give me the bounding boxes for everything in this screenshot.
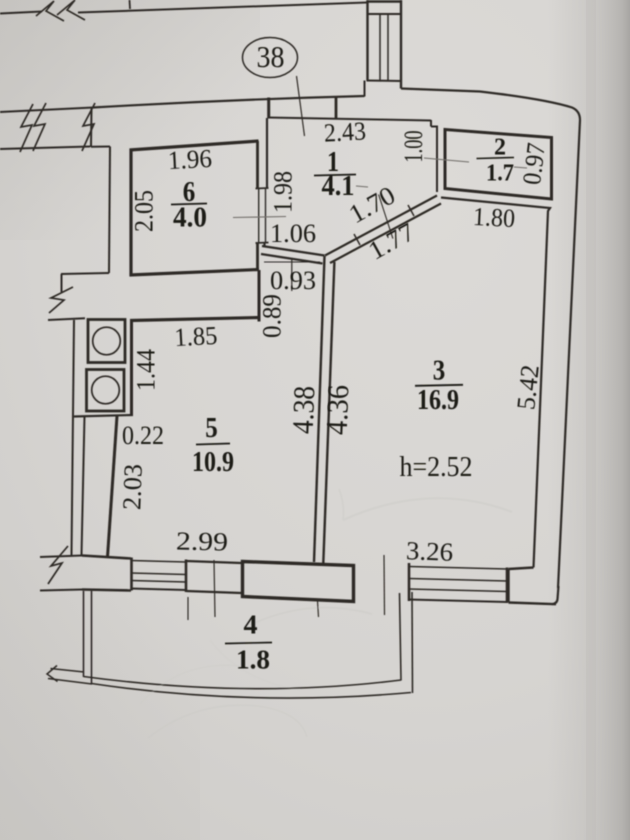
svg-text:2.05: 2.05	[130, 190, 159, 232]
svg-text:2.03: 2.03	[117, 463, 148, 510]
svg-text:1.98: 1.98	[269, 171, 298, 213]
svg-text:4.1: 4.1	[322, 170, 355, 202]
svg-text:5: 5	[205, 412, 218, 444]
svg-text:4: 4	[244, 610, 258, 640]
svg-text:4.38: 4.38	[287, 385, 322, 434]
svg-text:0.22: 0.22	[122, 421, 164, 450]
svg-text:3: 3	[433, 355, 446, 387]
svg-text:1.8: 1.8	[236, 645, 270, 675]
svg-text:1.80: 1.80	[472, 202, 515, 233]
svg-text:4.0: 4.0	[173, 202, 207, 234]
svg-text:0.93: 0.93	[270, 266, 316, 295]
svg-text:3.26: 3.26	[406, 536, 454, 567]
svg-text:1.06: 1.06	[270, 219, 316, 248]
svg-text:h=2.52: h=2.52	[400, 452, 473, 483]
svg-text:2: 2	[494, 135, 506, 161]
svg-text:1.96: 1.96	[167, 144, 212, 175]
svg-text:2.99: 2.99	[176, 527, 228, 557]
svg-text:5.42: 5.42	[511, 363, 545, 411]
svg-text:0.97: 0.97	[517, 141, 551, 186]
svg-text:1.44: 1.44	[132, 349, 161, 391]
svg-text:0.89: 0.89	[258, 294, 287, 338]
svg-text:1.7: 1.7	[486, 161, 514, 187]
svg-text:1.00: 1.00	[399, 131, 428, 163]
svg-text:2.43: 2.43	[323, 116, 366, 147]
svg-text:10.9: 10.9	[192, 446, 234, 478]
svg-text:4.36: 4.36	[321, 384, 356, 435]
svg-text:1.85: 1.85	[174, 321, 218, 352]
svg-text:38: 38	[257, 39, 285, 74]
svg-text:16.9: 16.9	[417, 384, 459, 416]
